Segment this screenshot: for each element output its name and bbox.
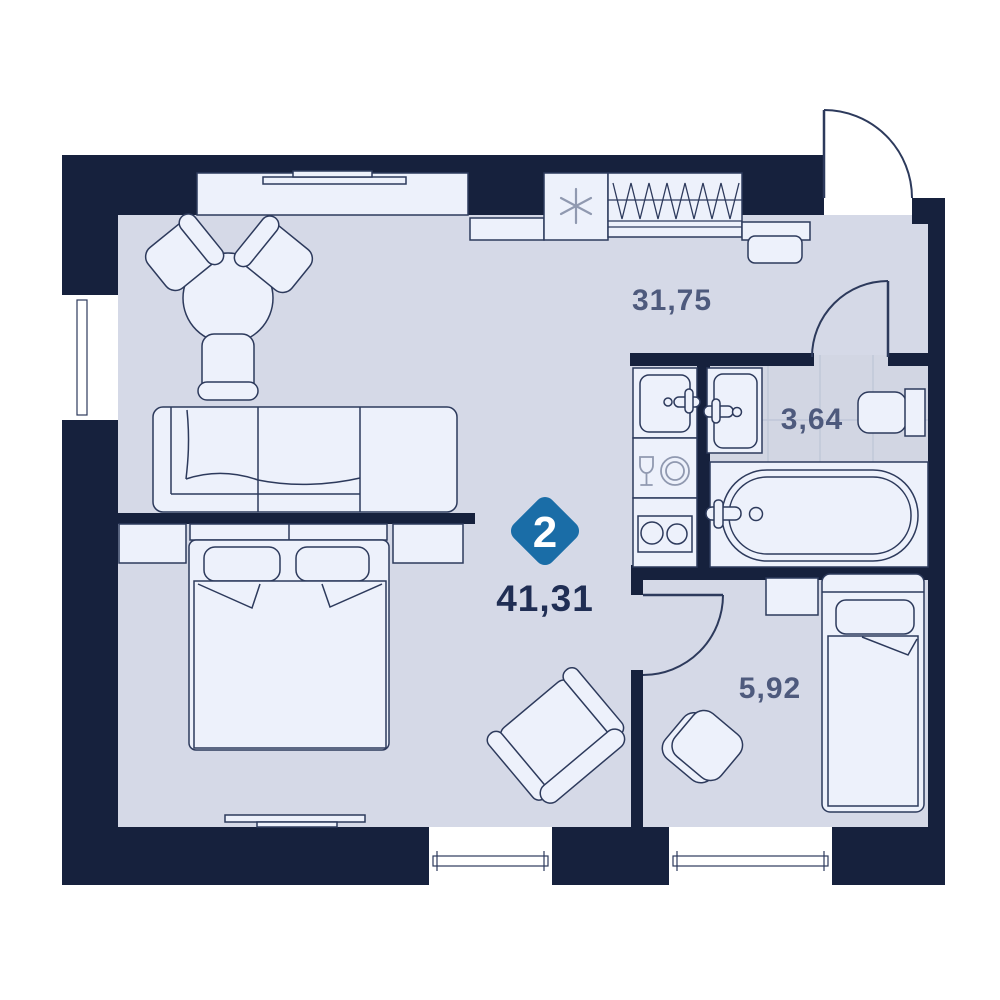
toilet-bowl bbox=[858, 392, 906, 433]
floor-plan-svg: 31,75 3,64 5,92 41,31 2 bbox=[0, 0, 1000, 1000]
washbasin bbox=[704, 368, 762, 453]
area-label-living: 31,75 bbox=[632, 284, 712, 317]
wall-bath-top-left bbox=[630, 353, 814, 366]
badge-number: 2 bbox=[533, 508, 557, 557]
wall-smallroom-lower bbox=[631, 670, 643, 827]
cooktop bbox=[633, 498, 697, 567]
bathroom-door-threshold-tiles bbox=[814, 355, 888, 366]
toilet bbox=[858, 389, 925, 436]
bedroom-console-inner bbox=[257, 822, 337, 827]
counter-shelf-small bbox=[293, 171, 372, 177]
wall-left bbox=[62, 155, 118, 885]
toilet-tank bbox=[905, 389, 925, 436]
window-left-pane bbox=[77, 300, 87, 415]
sofa bbox=[153, 407, 457, 512]
bedroom-console bbox=[225, 815, 365, 822]
hallway-cabinet-rounded bbox=[748, 236, 802, 263]
single-bed-blanket bbox=[828, 636, 918, 806]
floor-plan: 31,75 3,64 5,92 41,31 2 bbox=[0, 0, 1000, 1000]
chair-bottom bbox=[198, 334, 258, 400]
blanket bbox=[194, 581, 386, 748]
total-area-label: 41,31 bbox=[496, 578, 594, 619]
wall-bedroom-divider bbox=[118, 513, 475, 524]
entrance-door bbox=[824, 110, 912, 198]
bathtub bbox=[706, 470, 918, 561]
burner-left bbox=[641, 522, 663, 544]
double-bed bbox=[189, 524, 389, 750]
single-bed-pillow bbox=[836, 600, 914, 634]
nightstand-left bbox=[119, 524, 186, 563]
kitchen-sink-unit bbox=[633, 368, 700, 438]
wall-bath-top-right bbox=[888, 353, 928, 366]
single-bed bbox=[822, 574, 924, 812]
area-label-bathroom: 3,64 bbox=[781, 403, 843, 436]
smallroom-nightstand bbox=[766, 578, 818, 615]
window-left bbox=[62, 295, 118, 420]
entrance-threshold bbox=[824, 198, 912, 215]
window-bottom-1-pane bbox=[433, 856, 548, 866]
window-bottom-2-pane bbox=[673, 856, 828, 866]
kitchen-counter-unit bbox=[633, 438, 697, 498]
pillow-right bbox=[296, 547, 369, 581]
pillow-left bbox=[204, 547, 280, 581]
burner-right bbox=[667, 524, 687, 544]
area-label-smallroom: 5,92 bbox=[739, 672, 801, 705]
wall-right bbox=[928, 215, 945, 885]
counter-shelf bbox=[263, 177, 406, 184]
nightstand-right bbox=[393, 524, 463, 563]
counter-strip bbox=[470, 218, 544, 240]
